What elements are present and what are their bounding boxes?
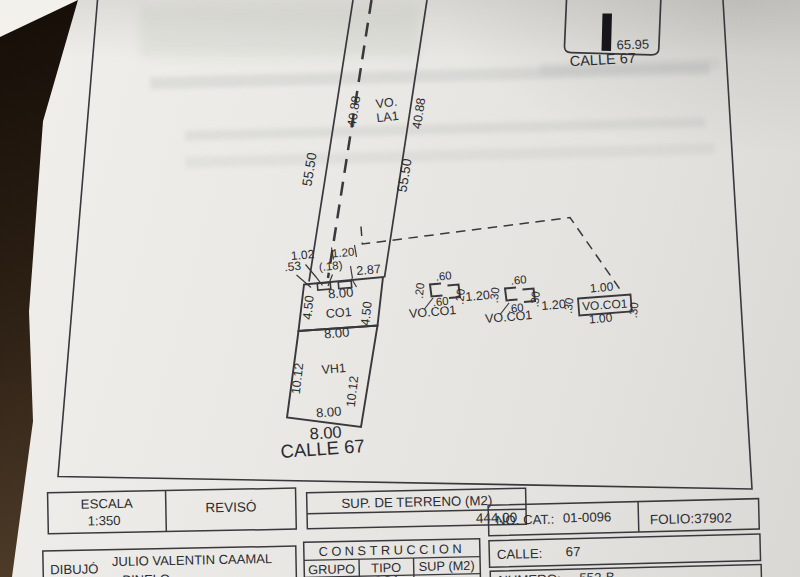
title-block-dibujo: DIBUJÓ JULIO VALENTIN CAAMAL PINELO [43, 546, 297, 577]
co1-side-left: 4.50 [300, 295, 316, 321]
win3-bottom: 1.00 [588, 310, 613, 326]
key-plan-lot-marker [602, 13, 612, 51]
vh1-side-right: 10.12 [344, 375, 361, 408]
construccion-header: CONSTRUCCION [318, 541, 465, 559]
numero-value: 552-B [579, 570, 615, 577]
win3-top: 1.00 [589, 279, 614, 295]
street-label: CALLE 67 [280, 435, 366, 462]
terreno-label: SUP. DE TERRENO (M2) [341, 493, 492, 511]
window-detail-3: VO.CO1 1.00 1.00 .30 .30 [562, 279, 641, 326]
dibujo-name-line2: PINELO [122, 572, 170, 577]
co1-name: CO1 [325, 305, 352, 321]
co1-side-right: 4.50 [358, 301, 374, 327]
folio-value: FOLIO:37902 [650, 510, 732, 527]
site-plan-drawing: 65.95 CALLE 67 55.50 55.50 40.88 40.88 V… [0, 0, 800, 577]
bleed-through-marks [140, 6, 720, 168]
co1-width-top: 8.00 [327, 284, 354, 301]
win1-left: .20 [413, 282, 427, 299]
no-cat-value: 01-0096 [563, 509, 612, 525]
row1-tipo-value: CO1 [373, 573, 400, 577]
col-grupo: GRUPO [308, 561, 355, 577]
building-vh1: 8.00 VH1 10.12 10.12 8.00 [287, 324, 378, 427]
front-dim-2-87: 2.87 [356, 262, 382, 278]
win1-label: VO.CO1 [409, 303, 457, 321]
win2-right: .30 [528, 290, 542, 307]
dashed-dim-left: 40.88 [345, 95, 364, 128]
win3-left: .30 [562, 297, 576, 314]
dibujo-label: DIBUJÓ [50, 561, 99, 577]
vo-la1-label-line2: LA1 [376, 109, 400, 126]
calle-label: CALLE: [497, 546, 543, 562]
win1-top: .60 [435, 269, 452, 282]
key-plan: 65.95 CALLE 67 [564, 0, 660, 69]
title-block-terreno: SUP. DE TERRENO (M2) 444.00 [307, 488, 527, 529]
front-dim-53: .53 [284, 259, 302, 274]
escala-label: ESCALA [81, 496, 134, 512]
window-detail-2: .60 .30 .30 .60 VO.CO1 [485, 273, 542, 326]
win2-top: .60 [510, 273, 527, 286]
title-block-cadastral: NO. CAT.: 01-0096 FOLIO:37902 CALLE: 67 … [488, 499, 762, 577]
dibujo-name-line1: JULIO VALENTIN CAAMAL [112, 551, 272, 569]
photographed-survey-document: 65.95 CALLE 67 55.50 55.50 40.88 40.88 V… [0, 0, 800, 577]
window-gap-1: 1.20 [465, 288, 491, 304]
front-dim-1-20: 1.20 [331, 246, 354, 260]
title-block-escala: ESCALA 1:350 REVISÓ [48, 488, 297, 534]
calle-value: 67 [566, 544, 581, 559]
window-detail-1: .60 .20 .20 .60 VO.CO1 [409, 269, 467, 321]
right-boundary-dim: 55.50 [395, 157, 415, 193]
col-sup: SUP (M2) [419, 558, 475, 574]
win2-left: .30 [488, 286, 502, 303]
vh1-name: VH1 [321, 361, 346, 377]
window-symbol [505, 288, 518, 301]
win2-label: VO.CO1 [485, 308, 533, 326]
vh1-width-bottom: 8.00 [315, 403, 342, 420]
vh1-side-left: 10.12 [289, 362, 306, 395]
escala-value: 1:350 [87, 513, 120, 529]
front-edge-dimensions: 1.02 .53 1.20 (.18) 2.87 [284, 245, 382, 290]
front-dim-18: (.18) [318, 259, 343, 273]
vh1-width-top: 8.00 [323, 324, 350, 341]
no-cat-label: NO. CAT.: [496, 512, 555, 528]
reviso-label: REVISÓ [205, 499, 256, 515]
numero-label: NUMERO: [498, 571, 561, 577]
title-block-construccion: CONSTRUCCION GRUPO TIPO SUP (M2) CO1 [304, 539, 481, 577]
dashed-reference-line [361, 218, 622, 292]
win3-right: .30 [627, 301, 641, 318]
building-co1: 8.00 4.50 4.50 CO1 [299, 277, 384, 331]
